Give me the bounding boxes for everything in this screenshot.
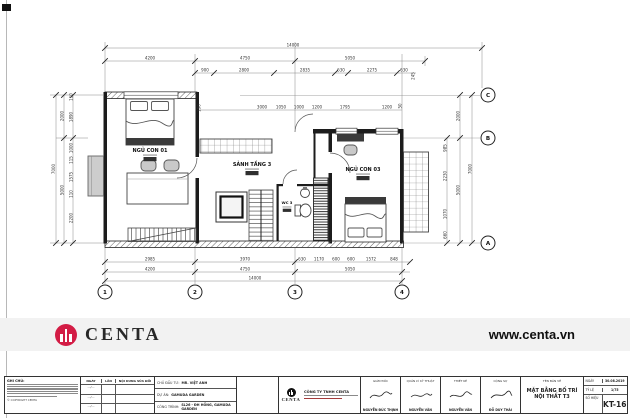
rev-row: …/… <box>81 385 154 395</box>
scale-value: 1/75 <box>603 388 628 392</box>
dim-label: 2835 <box>300 68 311 73</box>
grid-bubble-label: A <box>486 241 491 247</box>
dim-label: 2000 <box>456 110 461 121</box>
signer-tech-manager: QUẢN LÝ KỸ THUẬT NGUYỄN VĂN <box>401 377 441 413</box>
signature <box>368 390 394 401</box>
drawing-title: MẶT BẰNG BỐ TRÍ NỘI THẤT T3 <box>523 388 581 401</box>
chair <box>164 160 179 171</box>
room-label: WC 3 <box>282 200 293 205</box>
dim-label: 2230 <box>443 170 448 181</box>
dim-label: 7000 <box>51 163 56 174</box>
dim-label: 4200 <box>145 267 156 272</box>
corner-mark <box>2 4 11 11</box>
drawing-title-cell: TÊN BẢN VẼ MẶT BẰNG BỐ TRÍ NỘI THẤT T3 <box>521 377 584 413</box>
signer-associate: CỘNG SỰ ĐỖ DUY THÁI <box>481 377 521 413</box>
dim-label: 110 <box>69 93 74 101</box>
grid-bubble-label: B <box>486 136 490 142</box>
dim-label: 2800 <box>239 68 250 73</box>
dim-label: 5050 <box>345 267 356 272</box>
dim-label: 14000 <box>249 276 262 281</box>
dim-label: 1050 <box>276 105 287 110</box>
rev-header-date: NGÀY <box>81 379 102 383</box>
dim-label: 4200 <box>145 56 156 61</box>
grid-bubble-label: C <box>486 93 490 99</box>
drawing-sheet: 1400042004750505090028002835630227563024… <box>0 0 630 418</box>
grid-bubble-label: 3 <box>293 290 297 296</box>
dim-label: 630 <box>337 68 345 73</box>
grid-bubble-label: 4 <box>400 290 404 296</box>
dim-label: 985 <box>443 144 448 152</box>
room-area-tag <box>245 168 259 170</box>
website-url[interactable]: www.centa.vn <box>489 327 575 342</box>
brand-wordmark: CENTA <box>85 324 162 345</box>
balcony-ledge <box>88 156 104 196</box>
signature <box>488 390 514 401</box>
wardrobe <box>404 152 429 232</box>
rev-header-no: LẦN <box>102 379 116 383</box>
project-name: GAMUDA GARDEN <box>171 393 204 397</box>
dim-label: 1572 <box>366 257 377 262</box>
client-name: MR. VIỆT ANH <box>181 381 207 385</box>
rev-header-content: NỘI DUNG SỬA ĐỔI <box>116 379 154 383</box>
chair <box>344 145 357 155</box>
dim-label: 2985 <box>145 257 156 262</box>
client-label: CHỦ ĐẦU TƯ: <box>157 381 179 385</box>
ladder-shaft <box>314 178 329 241</box>
sheet-edge-line <box>6 0 7 418</box>
room-label: NGỦ CON 03 <box>346 165 381 173</box>
notes-title: GHI CHÚ: <box>7 379 78 383</box>
dim-label: 5000 <box>60 184 65 195</box>
dim-label: 660 <box>443 231 448 239</box>
rev-row: …/… <box>81 404 154 413</box>
dim-label: 1890 <box>69 111 74 122</box>
dim-label: 630 <box>400 68 408 73</box>
dim-label: 600 <box>332 257 340 262</box>
company-brand: CENTA <box>281 397 301 402</box>
signature <box>408 390 434 401</box>
dim-label: 1575 <box>69 171 74 182</box>
dim-label: 245 <box>411 72 416 80</box>
dim-label: 600 <box>347 257 355 262</box>
dim-label: 115 <box>69 156 74 164</box>
floor-plan-canvas: 1400042004750505090028002835630227563024… <box>0 0 630 312</box>
drawing-title-label: TÊN BẢN VẼ <box>543 379 561 383</box>
company-cell: CENTA CÔNG TY TNHH CENTA <box>279 377 361 413</box>
dim-label: 2200 <box>69 212 74 223</box>
dim-label: 1795 <box>340 105 351 110</box>
revision-table: NGÀY LẦN NỘI DUNG SỬA ĐỔI …/… …/… …/… <box>81 377 155 413</box>
signature <box>448 390 474 401</box>
drawing-code: KT-16 <box>603 395 628 413</box>
empty-cell <box>237 377 279 413</box>
signer-designer: THIẾT KẾ NGUYỄN VĂN <box>441 377 481 413</box>
grid-bubble-label: 1 <box>103 290 107 296</box>
dim-label: 2275 <box>367 68 378 73</box>
dim-label: 50 <box>398 103 403 109</box>
meta-cell: NGÀY 30.08.2019 TỶ LỆ 1/75 SỐ HIỆU KT-16 <box>584 377 627 413</box>
room-label: NGỦ CON 01 <box>133 146 168 154</box>
desk-03 <box>337 134 364 142</box>
date-label: NGÀY <box>584 379 603 383</box>
title-block: GHI CHÚ: © COPYRIGHT CENTA NGÀY LẦN NỘI … <box>4 376 628 414</box>
dim-label: 110 <box>69 190 74 198</box>
hall-cabinet <box>200 139 272 153</box>
room-area-tag <box>356 173 370 175</box>
project-info: CHỦ ĐẦU TƯ: MR. VIỆT ANH DỰ ÁN: GAMUDA G… <box>155 377 237 413</box>
dim-label: 1200 <box>312 105 323 110</box>
dim-label: 5050 <box>345 56 356 61</box>
dim-label: 3970 <box>240 257 251 262</box>
dim-label: 3000 <box>257 105 268 110</box>
dim-label: 848 <box>390 257 398 262</box>
room-level-tag <box>246 171 259 175</box>
dim-label: 14000 <box>287 43 300 48</box>
room-level-tag <box>144 157 157 161</box>
dim-label: 4750 <box>240 267 251 272</box>
grid-bubble-label: 2 <box>193 290 197 296</box>
copyright-note: © COPYRIGHT CENTA <box>7 398 78 402</box>
room-label: SẢNH TẦNG 3 <box>233 159 272 168</box>
work-label: CÔNG TRÌNH: <box>157 405 179 409</box>
work-name: SL26 - ĐH HỒNG, GAMUDA GARDEN <box>181 403 234 411</box>
dim-label: 1000 <box>294 105 305 110</box>
centa-mini-logo-icon <box>287 388 296 397</box>
centa-logo-icon <box>55 324 77 346</box>
dim-label: 1200 <box>382 105 393 110</box>
rev-row: …/… <box>81 395 154 405</box>
logo-strip: CENTA www.centa.vn <box>0 318 630 351</box>
dim-label: 900 <box>201 68 209 73</box>
dim-label: 1000 <box>69 142 74 153</box>
room-area-tag <box>143 154 157 156</box>
chair <box>141 160 156 171</box>
room-area-tag <box>283 206 292 208</box>
project-label: DỰ ÁN: <box>157 393 169 397</box>
dim-label: 2000 <box>60 110 65 121</box>
dim-label: 630 <box>298 257 306 262</box>
signer-director: GIÁM ĐỐC NGUYỄN ĐỨC THỊNH <box>361 377 401 413</box>
dim-label: 4750 <box>240 56 251 61</box>
dim-label: 7000 <box>468 163 473 174</box>
room-level-tag <box>283 209 292 212</box>
room-level-tag <box>357 176 370 180</box>
scale-label: TỶ LỆ <box>584 388 603 392</box>
company-logo: CENTA <box>281 388 301 402</box>
company-name: CÔNG TY TNHH CENTA <box>304 390 358 394</box>
dim-label: 1170 <box>314 257 325 262</box>
dim-label: 1070 <box>443 208 448 219</box>
code-label: SỐ HIỆU <box>584 395 603 413</box>
brand-lockup: CENTA <box>55 324 162 346</box>
notes-cell: GHI CHÚ: © COPYRIGHT CENTA <box>5 377 81 413</box>
date-value: 30.08.2019 <box>603 379 628 383</box>
dim-label: 190 <box>197 104 202 112</box>
dim-label: 5000 <box>456 184 461 195</box>
